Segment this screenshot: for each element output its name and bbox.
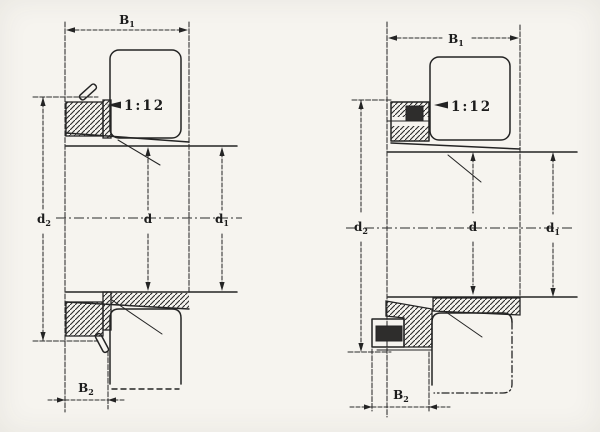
dimension-b2: B2 <box>350 388 450 410</box>
leader-line <box>446 312 482 337</box>
label-d: d <box>144 212 153 226</box>
dimension-b1: B1 <box>66 13 188 33</box>
adapter-sleeve-top <box>388 143 577 182</box>
label-d: d <box>469 220 478 234</box>
label-d2: d2 <box>354 220 368 236</box>
dimension-b2: B2 <box>48 381 125 403</box>
locknut-top <box>387 102 429 141</box>
dimension-d: d <box>144 147 153 291</box>
label-d1: d1 <box>215 212 229 228</box>
left-figure: 1:12 B1 <box>33 13 242 412</box>
dimension-d1: d1 <box>215 147 229 291</box>
technical-drawing: 1:12 B1 <box>0 0 600 432</box>
dimension-b1: B1 <box>388 32 519 48</box>
locking-screw <box>376 326 402 341</box>
right-figure: 1:12 B1 <box>346 22 577 417</box>
label-taper: 1:12 <box>451 99 492 115</box>
label-b1: B1 <box>448 32 464 48</box>
taper-callout-top: 1:12 <box>434 99 492 115</box>
extension-lines <box>33 22 189 412</box>
extension-lines <box>348 22 520 417</box>
label-b2: B2 <box>78 381 94 397</box>
dimension-d2: d2 <box>37 97 51 341</box>
scanned-drawing-page: 1:12 B1 <box>0 0 600 432</box>
bearing-inner-ring-bottom <box>110 309 181 389</box>
dimension-d2: d2 <box>354 100 368 352</box>
locknut-bottom <box>66 302 109 353</box>
leader-line <box>118 140 160 165</box>
lockwasher-tab <box>79 83 98 101</box>
locknut-bottom <box>372 301 432 350</box>
locknut-top <box>66 83 103 136</box>
label-d1: d1 <box>546 221 560 237</box>
label-taper: 1:12 <box>124 98 165 114</box>
dimension-d1: d1 <box>546 152 560 297</box>
taper-callout-top: 1:12 <box>107 98 165 114</box>
bearing-inner-ring-bottom <box>432 313 512 393</box>
label-d2: d2 <box>37 212 51 228</box>
locking-screw <box>406 106 423 121</box>
label-b2: B2 <box>393 388 409 404</box>
bearing-inner-ring-top <box>110 50 181 138</box>
label-b1: B1 <box>119 13 135 29</box>
leader-line <box>448 155 481 182</box>
taper-arrow-icon <box>434 102 448 109</box>
